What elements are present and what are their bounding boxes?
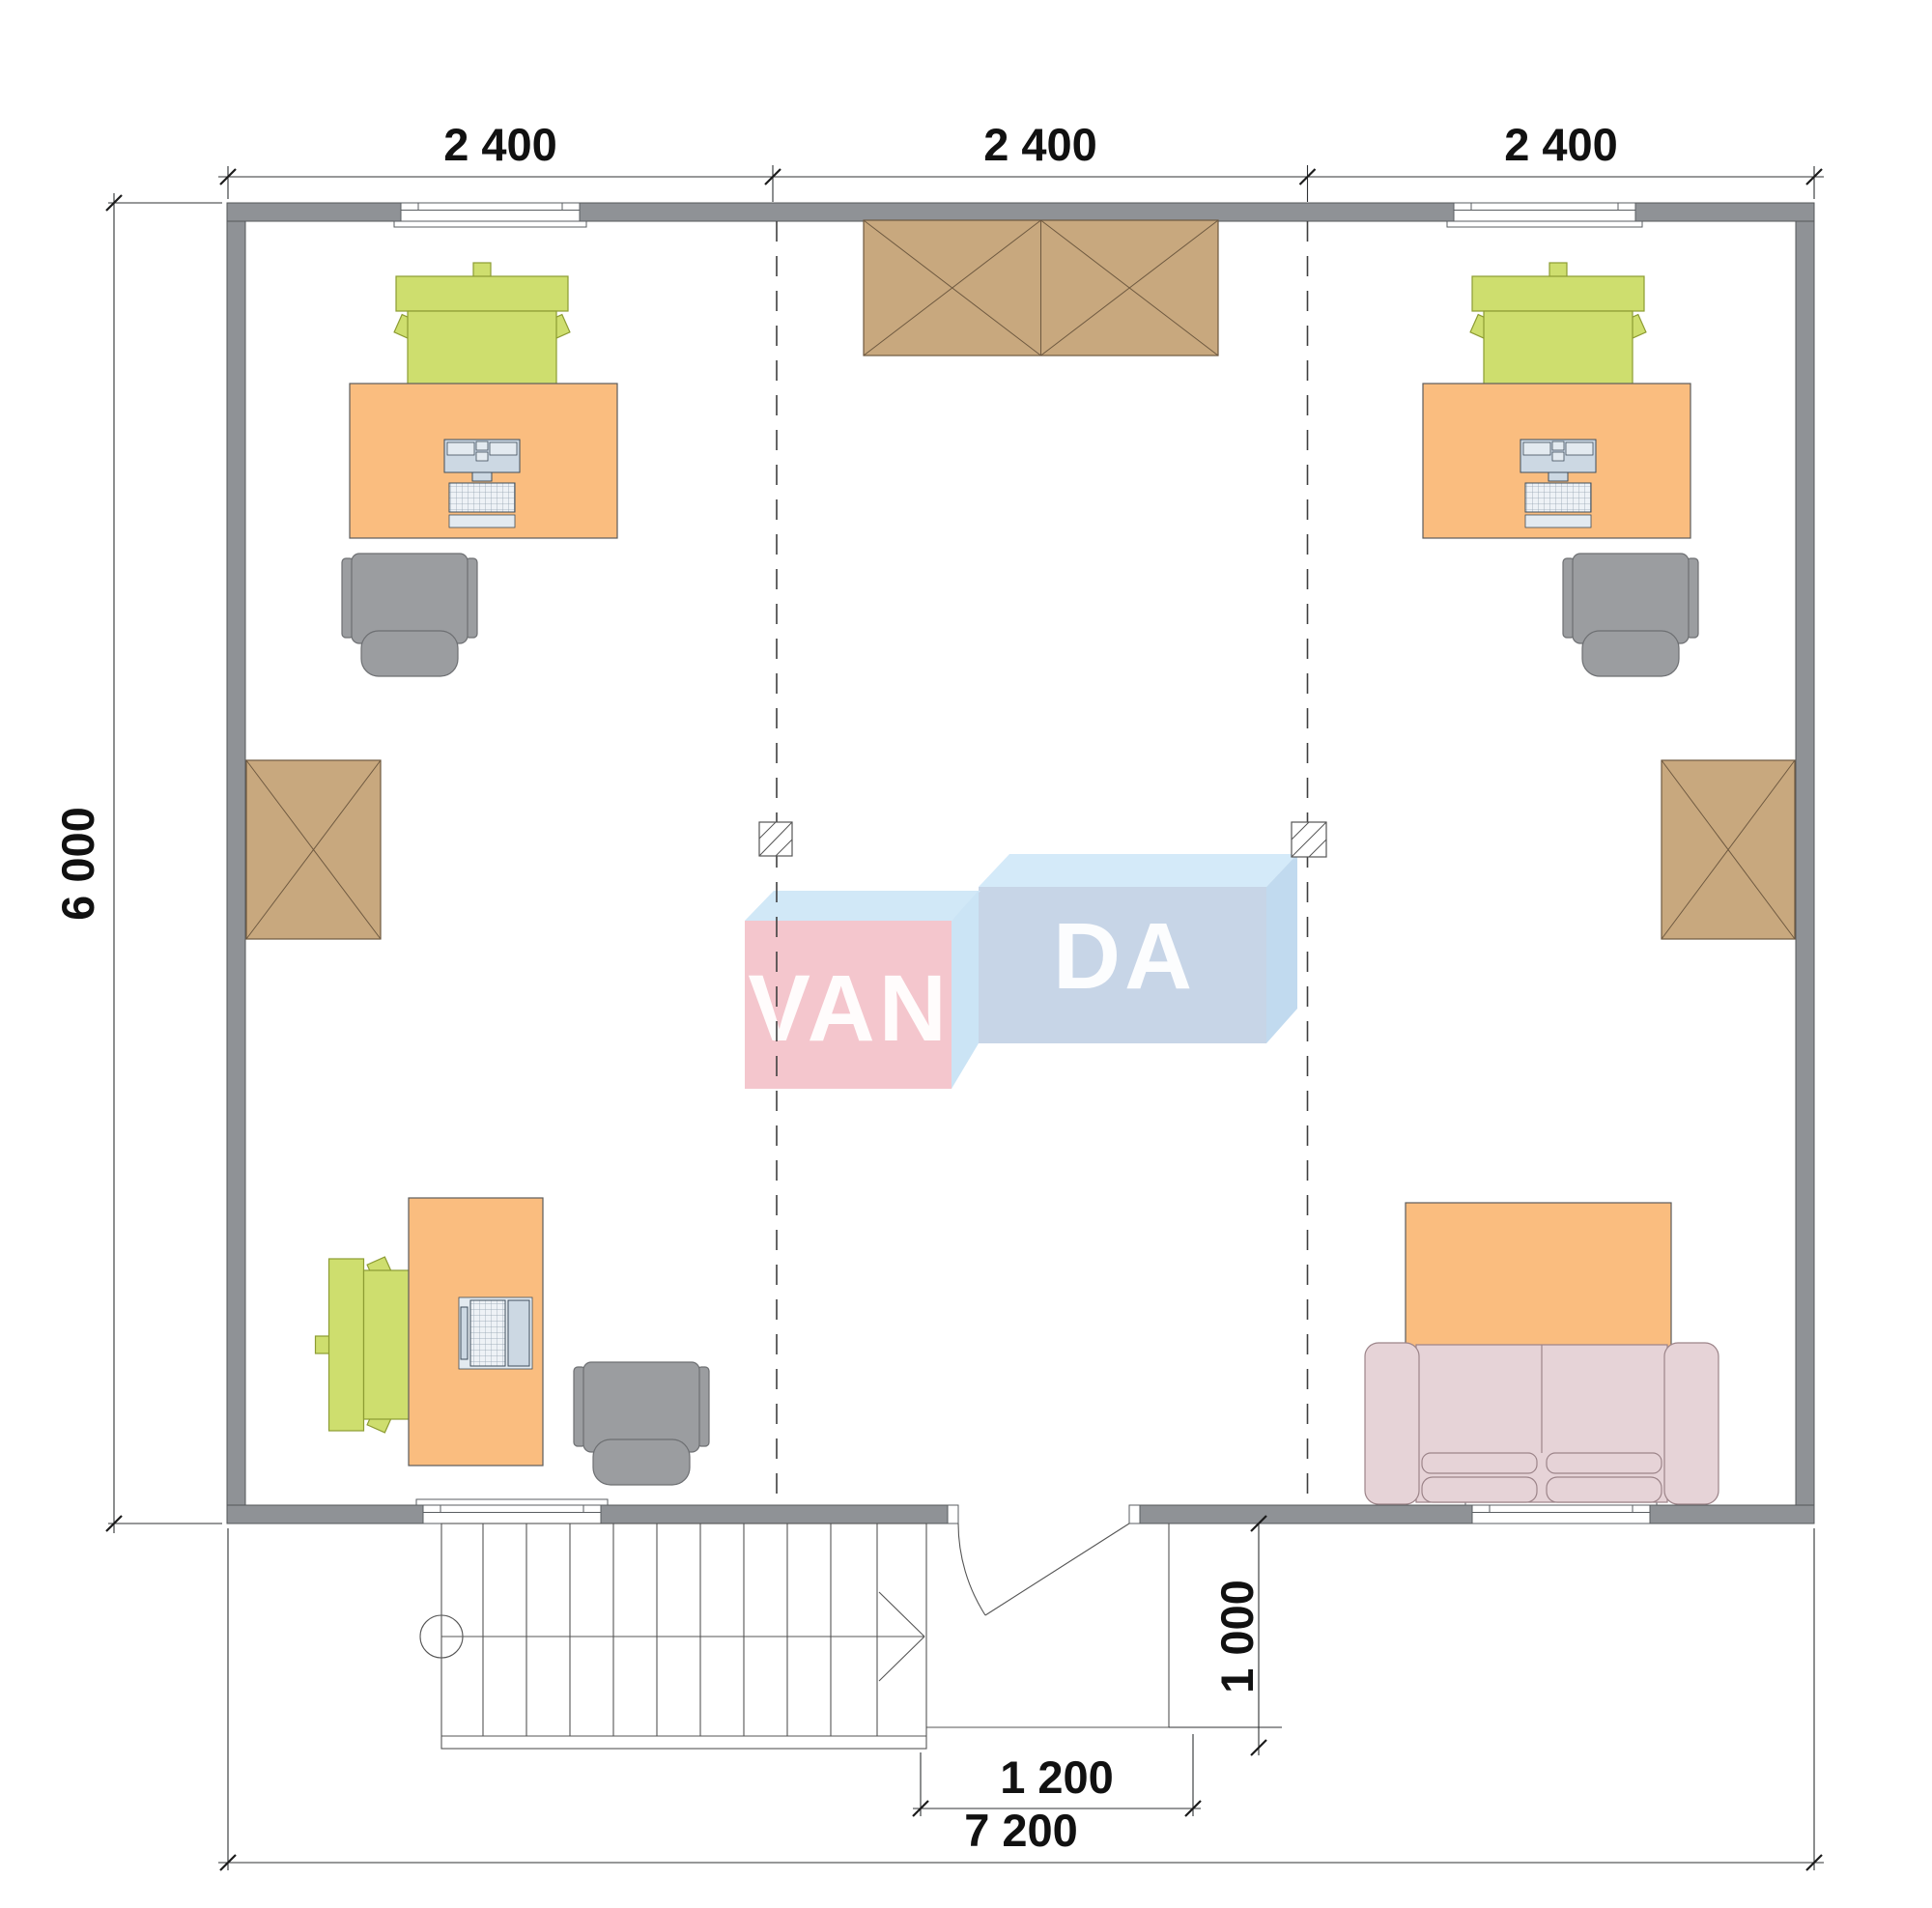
dim-label-entry-width: 1 200 bbox=[1000, 1751, 1114, 1803]
logo-text-right: DA bbox=[1053, 903, 1196, 1009]
sofa-armrest-left bbox=[1365, 1343, 1419, 1504]
keyboard bbox=[449, 483, 515, 512]
door-jamb-right bbox=[1129, 1505, 1140, 1524]
laptop-keyboard bbox=[470, 1300, 505, 1366]
coffee-table bbox=[1406, 1203, 1671, 1357]
wardrobe-right bbox=[1662, 760, 1795, 939]
entry-door bbox=[948, 1505, 1140, 1615]
laptop bbox=[459, 1297, 532, 1369]
laptop-screen bbox=[508, 1300, 529, 1366]
floor-plan-drawing: 2 400 2 400 2 400 6 000 7 200 1 200 1 00… bbox=[0, 0, 1932, 1908]
wall-left bbox=[227, 203, 245, 1524]
door-leaf bbox=[985, 1524, 1129, 1615]
dim-label-top-2: 2 400 bbox=[983, 119, 1097, 170]
stair-treads bbox=[483, 1524, 877, 1736]
sofa-cushion-right bbox=[1547, 1477, 1662, 1502]
floor-plan-canvas: 2 400 2 400 2 400 6 000 7 200 1 200 1 00… bbox=[0, 0, 1932, 1908]
dim-label-top-3: 2 400 bbox=[1504, 119, 1618, 170]
dimension-top: 2 400 2 400 2 400 bbox=[218, 119, 1824, 202]
window-top-left bbox=[394, 203, 586, 227]
door-swing-arc bbox=[958, 1524, 985, 1615]
stair-arrow-upper bbox=[879, 1592, 924, 1637]
sofa-armrest-right bbox=[1664, 1343, 1719, 1504]
column-left bbox=[759, 822, 792, 856]
sofa bbox=[1365, 1343, 1719, 1504]
dim-label-bottom-total: 7 200 bbox=[964, 1805, 1078, 1856]
dimension-left: 6 000 bbox=[52, 193, 222, 1533]
window-top-right bbox=[1447, 203, 1642, 227]
door-jamb-left bbox=[948, 1505, 958, 1524]
dim-label-top-1: 2 400 bbox=[443, 119, 557, 170]
dim-label-left: 6 000 bbox=[52, 807, 103, 921]
entry-porch bbox=[926, 1524, 1169, 1727]
window-bottom-right bbox=[1465, 1499, 1657, 1524]
vanda-watermark: VAN DA bbox=[745, 854, 1297, 1089]
green-chair-top-right bbox=[1470, 263, 1646, 385]
logo-left-box-side bbox=[952, 891, 979, 1089]
logo-right-box-top bbox=[979, 854, 1297, 887]
logo-right-box-side bbox=[1266, 854, 1297, 1043]
stair-arrow-lower bbox=[879, 1637, 924, 1681]
logo-left-box-top bbox=[745, 891, 980, 921]
logo-text-left: VAN bbox=[748, 955, 951, 1061]
wardrobe-top bbox=[864, 220, 1218, 356]
column-right bbox=[1292, 822, 1326, 857]
wall-right bbox=[1796, 203, 1814, 1524]
sofa-cushion-left bbox=[1422, 1477, 1537, 1502]
window-bottom-left bbox=[416, 1499, 608, 1524]
green-chair-top-left bbox=[394, 263, 570, 385]
keyboard bbox=[1525, 483, 1591, 512]
dimension-bottom-total: 7 200 bbox=[218, 1528, 1824, 1870]
wardrobe-left bbox=[246, 760, 381, 939]
dim-label-entry-depth: 1 000 bbox=[1211, 1580, 1263, 1694]
stairs bbox=[420, 1524, 926, 1749]
dimension-entry-depth: 1 000 bbox=[1169, 1516, 1282, 1755]
gray-chair-top-right bbox=[1563, 554, 1698, 676]
gray-chair-top-left bbox=[342, 554, 477, 676]
gray-chair-bottom-left bbox=[574, 1362, 709, 1485]
